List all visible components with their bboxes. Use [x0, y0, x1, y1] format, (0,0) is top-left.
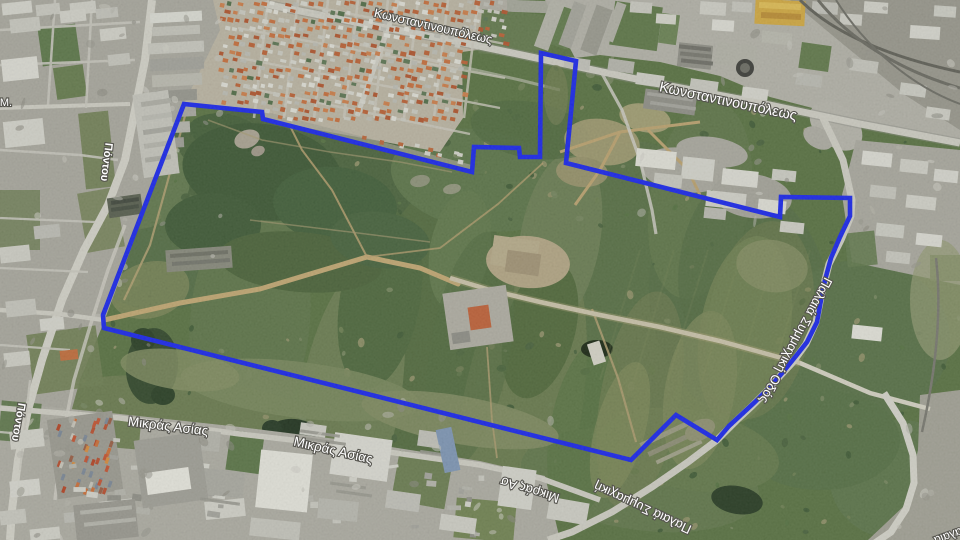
svg-text:Μ.: Μ.: [0, 97, 12, 109]
